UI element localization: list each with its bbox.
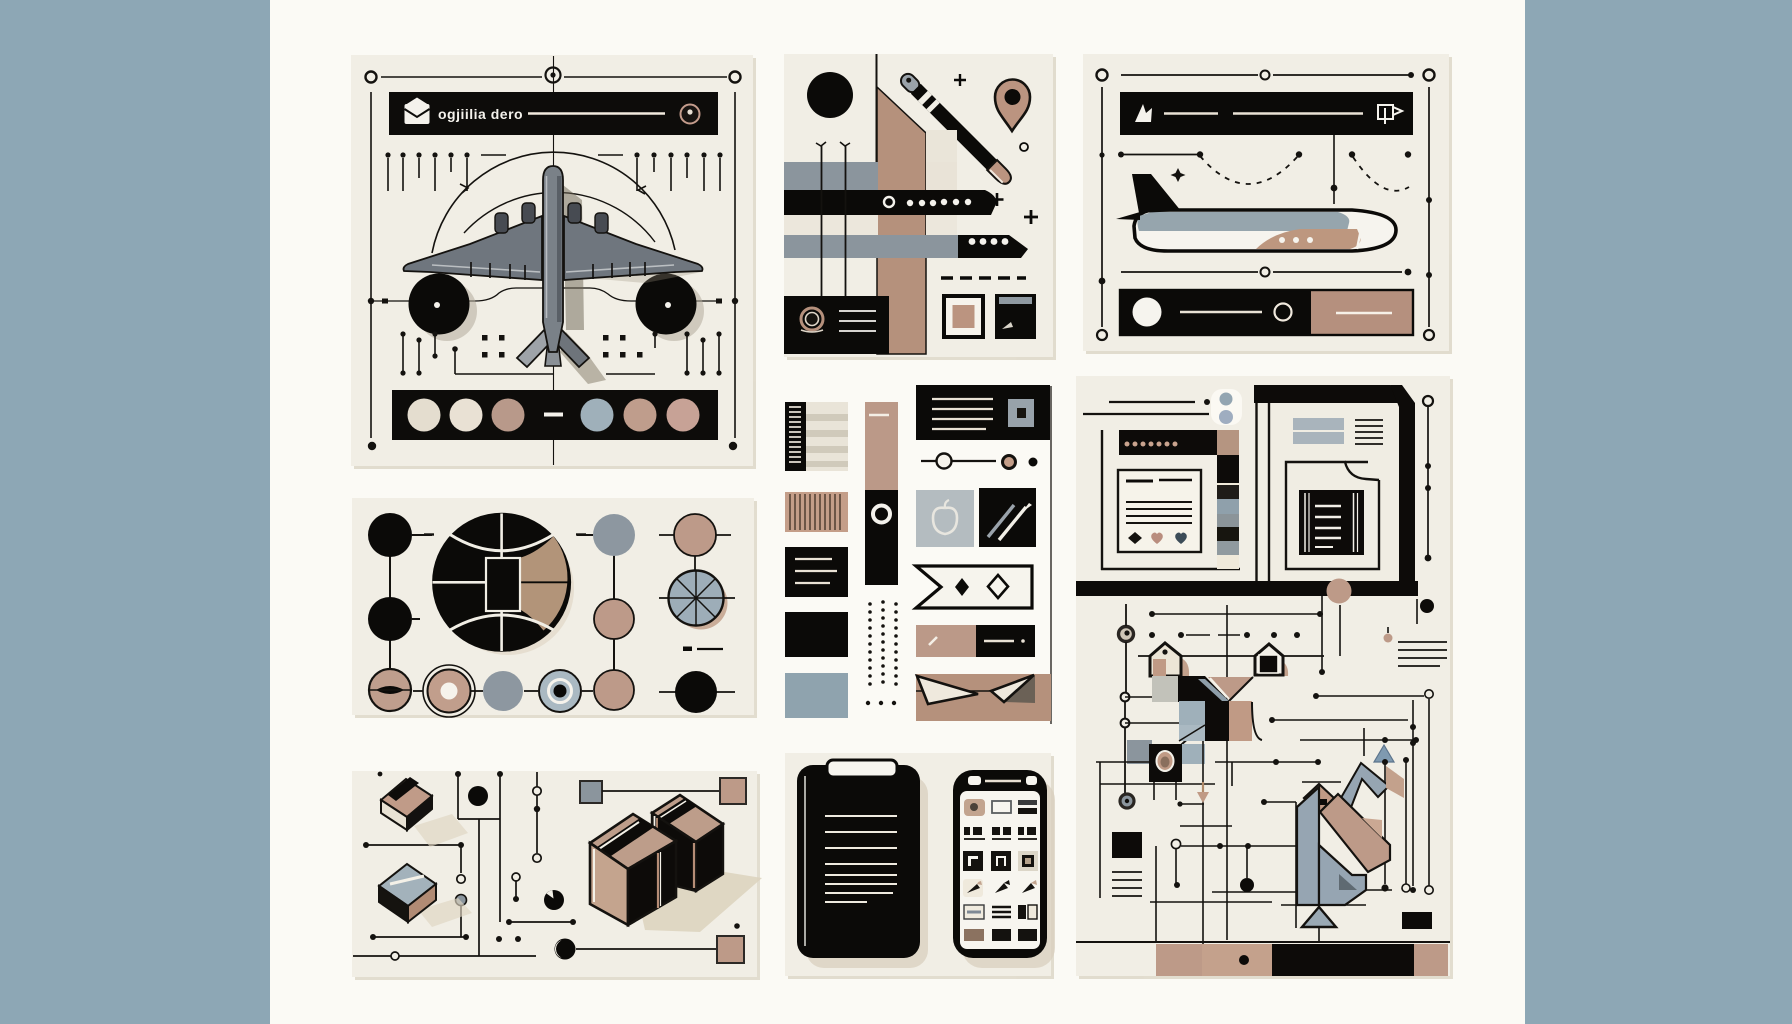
svg-text:ogjiilia dero: ogjiilia dero [438, 106, 523, 122]
